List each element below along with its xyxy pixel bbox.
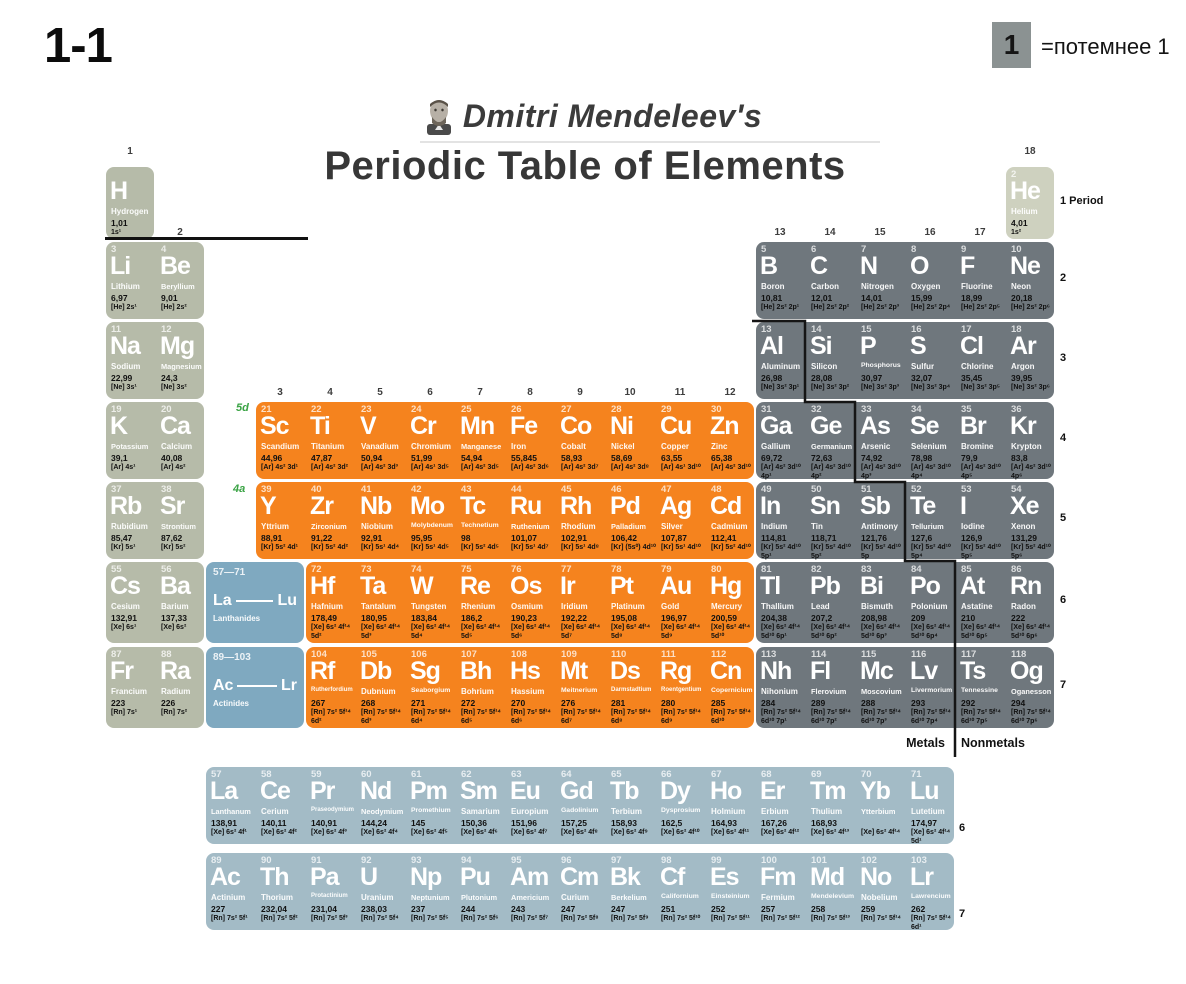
element-name: Titanium <box>311 442 344 451</box>
element-symbol: Pu <box>460 863 490 892</box>
element-name: Selenium <box>911 442 947 451</box>
element-symbol: Rf <box>310 657 334 686</box>
electron-config: [Rn] 7s² 5f¹⁴ 6d¹⁰ <box>711 709 756 726</box>
element-cell-In: 49InIndium114,81[Kr] 5s² 4d¹⁰ 5p¹ <box>755 480 805 560</box>
element-name: Tantalum <box>361 602 396 611</box>
element-name: Iron <box>511 442 526 451</box>
group-number: 9 <box>555 387 605 398</box>
element-cell-Rf: 104RfRutherfordium267[Rn] 7s² 5f¹⁴ 6d² <box>305 645 355 729</box>
element-symbol: Ce <box>260 777 290 806</box>
group-number: 3 <box>255 387 305 398</box>
atomic-mass: 32,07 <box>911 373 932 383</box>
element-symbol: U <box>360 863 377 892</box>
element-symbol: Fm <box>760 863 796 892</box>
element-name: Osmium <box>511 602 543 611</box>
electron-config: [Rn] 7s² <box>161 709 206 718</box>
element-cell-Pm: 61PmPromethium145[Xe] 6s² 4f⁵ <box>405 765 455 845</box>
electron-config: [Xe] 6s² 4f¹¹ <box>711 829 756 838</box>
element-cell-Ga: 31GaGallium69,72[Ar] 4s² 3d¹⁰ 4p¹ <box>755 400 805 480</box>
mendeleev-portrait-icon <box>424 97 454 135</box>
electron-config: [Xe] 6s² 4f¹⁴ 5d¹⁰ 6p¹ <box>761 624 806 641</box>
electron-config: [Xe] 6s² 4f¹⁴ 5d³ <box>361 624 406 641</box>
electron-config: [Ne] 3s² 3p⁶ <box>1011 384 1056 393</box>
element-cell-H: HHydrogen1,011s¹ <box>105 165 155 240</box>
element-symbol: Cl <box>960 332 983 361</box>
element-cell-Hg: 80HgMercury200,59[Xe] 6s² 4f¹⁴ 5d¹⁰ <box>705 560 755 644</box>
atomic-mass: 243 <box>511 904 525 914</box>
element-symbol: Eu <box>510 777 540 806</box>
electron-config: [Ne] 3s² 3p³ <box>861 384 906 393</box>
element-symbol: P <box>860 332 876 361</box>
element-cell-Nd: 60NdNeodymium144,24[Xe] 6s² 4f⁴ <box>355 765 405 845</box>
electron-config: [Rn] 7s² 5f¹⁰ <box>661 915 706 924</box>
element-name: Silver <box>661 522 683 531</box>
electron-config: [Xe] 6s² 4f⁵ <box>411 829 456 838</box>
element-name: Fluorine <box>961 282 993 291</box>
element-name: Protactinium <box>311 893 348 899</box>
element-symbol: Rn <box>1010 572 1041 601</box>
f-row-period-label: 6 <box>959 822 965 834</box>
electron-config: [He] 2s² <box>161 304 206 313</box>
electron-config: [Ar] 4s² 3d¹⁰ 4p³ <box>861 464 906 481</box>
electron-config: [Rn] 7s² 5f³ <box>311 915 356 924</box>
element-cell-Tc: 43TcTechnetium98[Kr] 5s² 4d⁵ <box>455 480 505 560</box>
electron-config: [Xe] 6s² <box>161 624 206 633</box>
element-symbol: Lu <box>910 777 939 806</box>
atomic-mass: 200,59 <box>711 613 737 623</box>
element-name: Iridium <box>561 602 588 611</box>
marker-first-symbol: La <box>213 592 232 610</box>
title-divider <box>420 141 880 143</box>
electron-config: [He] 2s² 2p¹ <box>761 304 806 313</box>
element-symbol: Te <box>910 492 935 521</box>
element-cell-Pd: 46PdPalladium106,42[Kr] (5s⁰) 4d¹⁰ <box>605 480 655 560</box>
element-symbol: Fr <box>110 657 133 686</box>
electron-config: [Rn] 7s² 5f¹⁴ 6d¹⁰ 7p⁶ <box>1011 709 1056 726</box>
element-cell-He: 2HeHelium4,011s² <box>1005 165 1055 240</box>
atomic-mass: 190,23 <box>511 613 537 623</box>
element-cell-Cm: 96CmCurium247[Rn] 7s² 5f⁸ <box>555 851 605 931</box>
element-name: Tin <box>811 522 823 531</box>
atomic-mass: 180,95 <box>361 613 387 623</box>
element-name: Einsteinium <box>711 893 750 900</box>
element-symbol: Nh <box>760 657 791 686</box>
element-cell-Bk: 97BkBerkelium247[Rn] 7s² 5f⁹ <box>605 851 655 931</box>
element-cell-La: 57LaLanthanum138,91[Xe] 6s² 4f¹ <box>205 765 255 845</box>
electron-config: [Kr] 5s² <box>161 544 206 553</box>
element-symbol: W <box>410 572 433 601</box>
atomic-mass: 22,99 <box>111 373 132 383</box>
element-cell-Te: 52TeTellurium127,6[Kr] 5s² 4d¹⁰ 5p⁴ <box>905 480 955 560</box>
atomic-mass: 114,81 <box>761 533 787 543</box>
green-annotation-4a: 4a <box>233 483 245 495</box>
electron-config: [Xe] 6s² 4f¹⁴ 5d¹⁰ 6p³ <box>861 624 906 641</box>
element-name: Tennessine <box>961 687 998 694</box>
element-symbol: Bk <box>610 863 640 892</box>
electron-config: [Rn] 7s² 5f⁷ <box>511 915 556 924</box>
atomic-mass: 98 <box>461 533 470 543</box>
electron-config: [He] 2s² 2p⁴ <box>911 304 956 313</box>
element-cell-Co: 27CoCobalt58,93[Ar] 4s² 3d⁷ <box>555 400 605 480</box>
electron-config: [Ar] 4s² 3d⁶ <box>511 464 556 473</box>
element-cell-Sr: 38SrStrontium87,62[Kr] 5s² <box>155 480 205 560</box>
element-name: Barium <box>161 602 189 611</box>
element-cell-I: 53IIodine126,9[Kr] 5s² 4d¹⁰ 5p⁵ <box>955 480 1005 560</box>
atomic-mass: 232,04 <box>261 904 287 914</box>
element-symbol: Bi <box>860 572 883 601</box>
element-cell-Rn: 86RnRadon222[Xe] 6s² 4f¹⁴ 5d¹⁰ 6p⁶ <box>1005 560 1055 644</box>
element-name: Oganesson <box>1011 687 1051 696</box>
electron-config: [Xe] 6s² 4f¹⁴ 5d¹⁰ <box>711 624 756 641</box>
atomic-mass: 204,38 <box>761 613 787 623</box>
element-symbol: Hf <box>310 572 334 601</box>
element-symbol: Ac <box>210 863 240 892</box>
green-annotation-5d: 5d <box>236 402 249 414</box>
atomic-mass: 15,99 <box>911 293 932 303</box>
electron-config: [Ar] 4s² 3d¹⁰ 4p² <box>811 464 856 481</box>
electron-config: [Rn] 7s² 5f¹⁴ 6d¹⁰ 7p⁴ <box>911 709 956 726</box>
element-cell-Ac: 89AcActinium227[Rn] 7s² 5f¹ <box>205 851 255 931</box>
element-symbol: Ra <box>160 657 190 686</box>
element-name: Hafnium <box>311 602 343 611</box>
electron-config: [Rn] 7s² 5f¹³ <box>811 915 856 924</box>
electron-config: [Rn] 7s² 5f² <box>261 915 306 924</box>
element-name: Moscovium <box>861 687 902 696</box>
element-symbol: Fl <box>810 657 830 686</box>
electron-config: [Ar] 4s² 3d³ <box>361 464 406 473</box>
element-cell-W: 74WTungsten183,84[Xe] 6s² 4f¹⁴ 5d⁴ <box>405 560 455 644</box>
element-cell-Eu: 63EuEuropium151,96[Xe] 6s² 4f⁷ <box>505 765 555 845</box>
atomic-mass: 63,55 <box>661 453 682 463</box>
electron-config: [Rn] 7s² 5f¹² <box>761 915 806 924</box>
element-name: Rhenium <box>461 602 495 611</box>
element-name: Silicon <box>811 362 837 371</box>
atomic-mass: 167,26 <box>761 818 787 828</box>
element-symbol: Pa <box>310 863 339 892</box>
electron-config: [Kr] 5s² 4d² <box>311 544 356 553</box>
element-symbol: Sm <box>460 777 497 806</box>
atomic-mass: 258 <box>811 904 825 914</box>
element-name: Arsenic <box>861 442 890 451</box>
element-name: Indium <box>761 522 787 531</box>
atomic-mass: 210 <box>961 613 975 623</box>
element-symbol: Tl <box>760 572 780 601</box>
corner-label: 1-1 <box>44 18 112 74</box>
electron-config: [Xe] 6s² 4f¹⁴ 5d¹⁰ 6p⁶ <box>1011 624 1056 641</box>
element-cell-Am: 95AmAmericium243[Rn] 7s² 5f⁷ <box>505 851 555 931</box>
element-cell-Sc: 21ScScandium44,96[Ar] 4s² 3d¹ <box>255 400 305 480</box>
marker-last-symbol: Lr <box>281 677 297 695</box>
electron-config: [Xe] 6s² 4f⁷ <box>511 829 556 838</box>
electron-config: [He] 2s² 2p⁶ <box>1011 304 1056 313</box>
electron-config: [Ar] 4s¹ <box>111 464 156 473</box>
atomic-mass: 95,95 <box>411 533 432 543</box>
element-name: Argon <box>1011 362 1035 371</box>
electron-config: [Rn] 7s² 5f¹⁴ 6d⁶ <box>511 709 556 726</box>
element-name: Phosphorus <box>861 362 901 369</box>
atomic-mass: 280 <box>661 698 675 708</box>
electron-config: [He] 2s¹ <box>111 304 156 313</box>
atomic-mass: 106,42 <box>611 533 637 543</box>
element-name: Manganese <box>461 442 501 451</box>
element-name: Astatine <box>961 602 993 611</box>
element-name: Zirconium <box>311 522 347 531</box>
element-cell-Zn: 30ZnZinc65,38[Ar] 4s² 3d¹⁰ <box>705 400 755 480</box>
element-cell-Xe: 54XeXenon131,29[Kr] 5s² 4d¹⁰ 5p⁶ <box>1005 480 1055 560</box>
element-name: Technetium <box>461 522 499 529</box>
atomic-mass: 196,97 <box>661 613 687 623</box>
electron-config: [Kr] (5s⁰) 4d¹⁰ <box>611 544 656 553</box>
electron-config: [Kr] 5s¹ 4d⁸ <box>561 544 606 553</box>
electron-config: [Rn] 7s² 5f¹⁴ 6d⁹ <box>661 709 706 726</box>
element-name: Copernicium <box>711 687 753 694</box>
element-name: Antimony <box>861 522 898 531</box>
element-symbol: Ds <box>610 657 640 686</box>
element-name: Yttrium <box>261 522 289 531</box>
electron-config: [Xe] 6s² 4f¹⁴ 5d⁵ <box>461 624 506 641</box>
electron-config: [Ar] 4s² 3d² <box>311 464 356 473</box>
electron-config: [Ne] 3s² 3p² <box>811 384 856 393</box>
marker-first-symbol: Ac <box>213 677 233 695</box>
element-symbol: Ba <box>160 572 190 601</box>
element-name: Lanthanum <box>211 807 251 816</box>
element-name: Aluminum <box>761 362 800 371</box>
element-symbol: Ir <box>560 572 575 601</box>
electron-config: [Ne] 3s² 3p⁴ <box>911 384 956 393</box>
element-name: Curium <box>561 893 589 902</box>
element-name: Calcium <box>161 442 192 451</box>
element-name: Helium <box>1011 207 1038 216</box>
marker-range: 89—103 <box>213 652 251 663</box>
element-symbol: Ge <box>810 412 841 441</box>
legend-color-swatch: 1 <box>992 22 1031 68</box>
element-name: Californium <box>661 893 699 900</box>
element-name: Thorium <box>261 893 293 902</box>
atomic-mass: 87,62 <box>161 533 182 543</box>
element-symbol: Cm <box>560 863 598 892</box>
element-name: Krypton <box>1011 442 1042 451</box>
poster: 1-1 1 =потемнее 1 Dmitri Mendeleev's Per… <box>0 0 1186 984</box>
element-symbol: Ho <box>710 777 741 806</box>
element-symbol: Cd <box>710 492 741 521</box>
period-label: 5 <box>1060 512 1066 524</box>
electron-config: [Rn] 7s² 5f⁸ <box>561 915 606 924</box>
electron-config: [Xe] 6s² 4f¹⁴ 5d⁹ <box>661 624 706 641</box>
element-symbol: Sg <box>410 657 440 686</box>
element-name: Dysprosium <box>661 807 700 814</box>
electron-config: [Kr] 5s² 4d¹⁰ 5p² <box>811 544 856 561</box>
annotation-underline <box>105 237 308 240</box>
element-name: Bismuth <box>861 602 893 611</box>
element-name: Germanium <box>811 442 852 451</box>
marker-dash <box>236 600 274 602</box>
electron-config: [Ar] 4s¹ 3d¹⁰ <box>661 464 706 473</box>
element-symbol: Og <box>1010 657 1043 686</box>
element-cell-Si: 14SiSilicon28,08[Ne] 3s² 3p² <box>805 320 855 400</box>
atomic-mass: 281 <box>611 698 625 708</box>
element-name: Beryllium <box>161 282 195 291</box>
electron-config: [Rn] 7s² 5f¹⁴ 6d⁷ <box>561 709 606 726</box>
atomic-mass: 112,41 <box>711 533 737 543</box>
electron-config: 1s² <box>1011 229 1056 238</box>
element-name: Uranium <box>361 893 393 902</box>
electron-config: [He] 2s² 2p³ <box>861 304 906 313</box>
element-name: Vanadium <box>361 442 399 451</box>
element-symbol: Zr <box>310 492 333 521</box>
element-symbol: At <box>960 572 984 601</box>
electron-config: [Rn] 7s² 5f¹¹ <box>711 915 756 924</box>
element-cell-Ts: 117TsTennessine292[Rn] 7s² 5f¹⁴ 6d¹⁰ 7p⁵ <box>955 645 1005 729</box>
element-symbol: Rh <box>560 492 591 521</box>
atomic-mass: 12,01 <box>811 293 832 303</box>
element-cell-Bh: 107BhBohrium272[Rn] 7s² 5f¹⁴ 6d⁵ <box>455 645 505 729</box>
element-symbol: As <box>860 412 890 441</box>
atomic-mass: 102,91 <box>561 533 587 543</box>
element-symbol: H <box>110 177 127 206</box>
element-cell-Hs: 108HsHassium270[Rn] 7s² 5f¹⁴ 6d⁶ <box>505 645 555 729</box>
element-symbol: Ts <box>960 657 985 686</box>
atomic-mass: 74,92 <box>861 453 882 463</box>
element-symbol: Cs <box>110 572 140 601</box>
element-cell-Ge: 32GeGermanium72,63[Ar] 4s² 3d¹⁰ 4p² <box>805 400 855 480</box>
element-name: Xenon <box>1011 522 1035 531</box>
atomic-mass: 101,07 <box>511 533 537 543</box>
element-symbol: Tc <box>460 492 485 521</box>
atomic-mass: 65,38 <box>711 453 732 463</box>
electron-config: [Xe] 6s² 4f¹⁴ 5d⁸ <box>611 624 656 641</box>
element-name: Bohrium <box>461 687 494 696</box>
element-cell-As: 33AsArsenic74,92[Ar] 4s² 3d¹⁰ 4p³ <box>855 400 905 480</box>
element-cell-Y: 39YYttrium88,91[Kr] 5s² 4d¹ <box>255 480 305 560</box>
marker-last-symbol: Lu <box>277 592 297 610</box>
element-name: Flerovium <box>811 687 846 696</box>
electron-config: [Ar] 4s² 3d¹⁰ <box>711 464 756 473</box>
electron-config: [Rn] 7s² 5f⁶ <box>461 915 506 924</box>
element-name: Polonium <box>911 602 947 611</box>
atomic-mass: 145 <box>411 818 425 828</box>
atomic-mass: 14,01 <box>861 293 882 303</box>
element-cell-Rh: 45RhRhodium102,91[Kr] 5s¹ 4d⁸ <box>555 480 605 560</box>
marker-label: Actinides <box>213 699 249 708</box>
atomic-mass: 231,04 <box>311 904 337 914</box>
element-symbol: F <box>960 252 974 281</box>
element-symbol: Au <box>660 572 691 601</box>
period-label: 3 <box>1060 352 1066 364</box>
atomic-mass: 162,5 <box>661 818 682 828</box>
electron-config: [Kr] 5s² 4d¹⁰ 5p⁶ <box>1011 544 1056 561</box>
element-cell-Al: 13AlAluminum26,98[Ne] 3s² 3p¹ <box>755 320 805 400</box>
element-cell-Lv: 116LvLivermorium293[Rn] 7s² 5f¹⁴ 6d¹⁰ 7p… <box>905 645 955 729</box>
atomic-mass: 140,11 <box>261 818 287 828</box>
element-name: Promethium <box>411 807 451 814</box>
darker-note: =потемнее 1 <box>1041 34 1170 60</box>
element-symbol: Sr <box>160 492 184 521</box>
element-symbol: Zn <box>710 412 739 441</box>
atomic-mass: 35,45 <box>961 373 982 383</box>
atomic-mass: 183,84 <box>411 613 437 623</box>
electron-config: [Ar] 4s² 3d⁵ <box>461 464 506 473</box>
element-name: Cesium <box>111 602 140 611</box>
group-number: 1 <box>105 146 155 157</box>
electron-config: [Xe] 6s² 4f¹⁴ 5d¹⁰ 6p⁴ <box>911 624 956 641</box>
element-name: Lawrencium <box>911 893 951 900</box>
element-cell-Bi: 83BiBismuth208,98[Xe] 6s² 4f¹⁴ 5d¹⁰ 6p³ <box>855 560 905 644</box>
element-symbol: Ca <box>160 412 190 441</box>
atomic-mass: 288 <box>861 698 875 708</box>
atomic-mass: 54,94 <box>461 453 482 463</box>
electron-config: [Kr] 5s² 4d¹⁰ 5p⁴ <box>911 544 956 561</box>
element-symbol: V <box>360 412 376 441</box>
electron-config: [Xe] 6s¹ <box>111 624 156 633</box>
element-symbol: Fe <box>510 412 537 441</box>
atomic-mass: 271 <box>411 698 425 708</box>
electron-config: [Xe] 6s² 4f¹⁴ 5d¹⁰ 6p² <box>811 624 856 641</box>
element-name: Iodine <box>961 522 985 531</box>
element-name: Scandium <box>261 442 299 451</box>
electron-config: [Xe] 6s² 4f¹⁴ 5d¹⁰ 6p⁵ <box>961 624 1006 641</box>
electron-config: [Ne] 3s² 3p⁵ <box>961 384 1006 393</box>
atomic-mass: 55,845 <box>511 453 537 463</box>
atomic-mass: 209 <box>911 613 925 623</box>
element-cell-C: 6CCarbon12,01[He] 2s² 2p² <box>805 240 855 320</box>
element-symbol: In <box>760 492 780 521</box>
atomic-mass: 257 <box>761 904 775 914</box>
element-cell-Mo: 42MoMolybdenum95,95[Kr] 5s¹ 4d⁵ <box>405 480 455 560</box>
element-symbol: Ti <box>310 412 330 441</box>
electron-config: [Rn] 7s² 5f⁹ <box>611 915 656 924</box>
atomic-mass: 30,97 <box>861 373 882 383</box>
group-number: 4 <box>305 387 355 398</box>
element-name: Plutonium <box>461 893 497 902</box>
marker-symbols: LaLu <box>213 592 297 610</box>
element-cell-Cs: 55CsCesium132,91[Xe] 6s¹ <box>105 560 155 644</box>
electron-config: [Rn] 7s² 5f¹⁴ 6d² <box>311 709 356 726</box>
element-cell-O: 8OOxygen15,99[He] 2s² 2p⁴ <box>905 240 955 320</box>
element-cell-Tm: 69TmThulium168,93[Xe] 6s² 4f¹³ <box>805 765 855 845</box>
atomic-mass: 28,08 <box>811 373 832 383</box>
group-number: 14 <box>805 227 855 238</box>
atomic-mass: 137,33 <box>161 613 187 623</box>
element-symbol: Yb <box>860 777 890 806</box>
electron-config: [Kr] 5s² 4d¹⁰ 5p¹ <box>761 544 806 561</box>
electron-config: [Kr] 5s¹ <box>111 544 156 553</box>
electron-config: [Kr] 5s² 4d⁵ <box>461 544 506 553</box>
marker-label: Lanthanides <box>213 614 260 623</box>
element-name: Nihonium <box>761 687 798 696</box>
element-cell-Nb: 41NbNiobium92,91[Kr] 5s¹ 4d⁴ <box>355 480 405 560</box>
element-symbol: Db <box>360 657 391 686</box>
f-block-marker-actinides: 89—103AcLrActinides <box>206 647 304 728</box>
electron-config: [Ar] 4s² <box>161 464 206 473</box>
element-cell-Ra: 88RaRadium226[Rn] 7s² <box>155 645 205 729</box>
page-title: Periodic Table of Elements <box>150 144 1020 189</box>
element-cell-Db: 105DbDubnium268[Rn] 7s² 5f¹⁴ 6d³ <box>355 645 405 729</box>
element-name: Neptunium <box>411 893 450 902</box>
element-name: Sodium <box>111 362 140 371</box>
element-symbol: Pm <box>410 777 447 806</box>
title-byline-row: Dmitri Mendeleev's <box>0 97 1186 135</box>
atomic-mass: 144,24 <box>361 818 387 828</box>
element-name: Holmium <box>711 807 745 816</box>
element-symbol: Y <box>260 492 276 521</box>
electron-config: [Ne] 3s¹ <box>111 384 156 393</box>
element-name: Hassium <box>511 687 544 696</box>
element-cell-Yb: 70YbYtterbium[Xe] 6s² 4f¹⁴ <box>855 765 905 845</box>
element-name: Praseodymium <box>311 807 354 813</box>
atomic-mass: 252 <box>711 904 725 914</box>
element-cell-Sg: 106SgSeaborgium271[Rn] 7s² 5f¹⁴ 6d⁴ <box>405 645 455 729</box>
element-symbol: Tb <box>610 777 639 806</box>
